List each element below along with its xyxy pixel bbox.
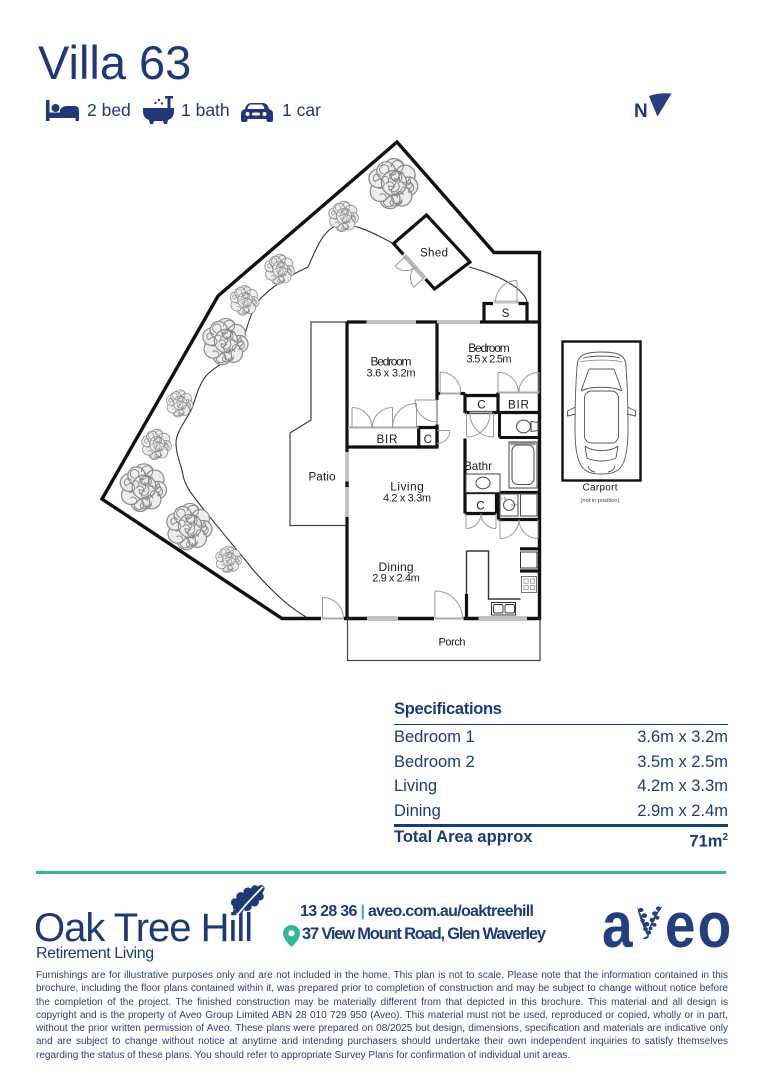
svg-text:C: C — [477, 399, 485, 412]
svg-text:BIR: BIR — [377, 433, 398, 446]
svg-text:4.2 x 3.3m: 4.2 x 3.3m — [383, 493, 431, 505]
svg-text:Living: Living — [390, 480, 424, 494]
svg-text:C: C — [424, 433, 432, 446]
svg-text:0.7: 0.7 — [511, 503, 518, 508]
svg-text:3.6 x 3.2m: 3.6 x 3.2m — [367, 368, 416, 380]
svg-text:S: S — [502, 307, 510, 320]
svg-text:C: C — [476, 500, 484, 513]
svg-text:Bedroom: Bedroom — [371, 355, 412, 369]
svg-text:Porch: Porch — [439, 637, 466, 649]
svg-text:(not in position): (not in position) — [581, 498, 620, 504]
svg-text:2.9 x 2.4m: 2.9 x 2.4m — [372, 573, 420, 585]
svg-text:Carport: Carport — [583, 483, 618, 494]
svg-text:Shed: Shed — [420, 248, 448, 260]
svg-text:3.5 x 2.5m: 3.5 x 2.5m — [467, 354, 512, 366]
svg-text:BIR: BIR — [508, 399, 529, 412]
svg-text:Bathr: Bathr — [464, 460, 492, 473]
svg-text:Patio: Patio — [309, 472, 336, 484]
svg-text:0.9: 0.9 — [500, 496, 507, 501]
